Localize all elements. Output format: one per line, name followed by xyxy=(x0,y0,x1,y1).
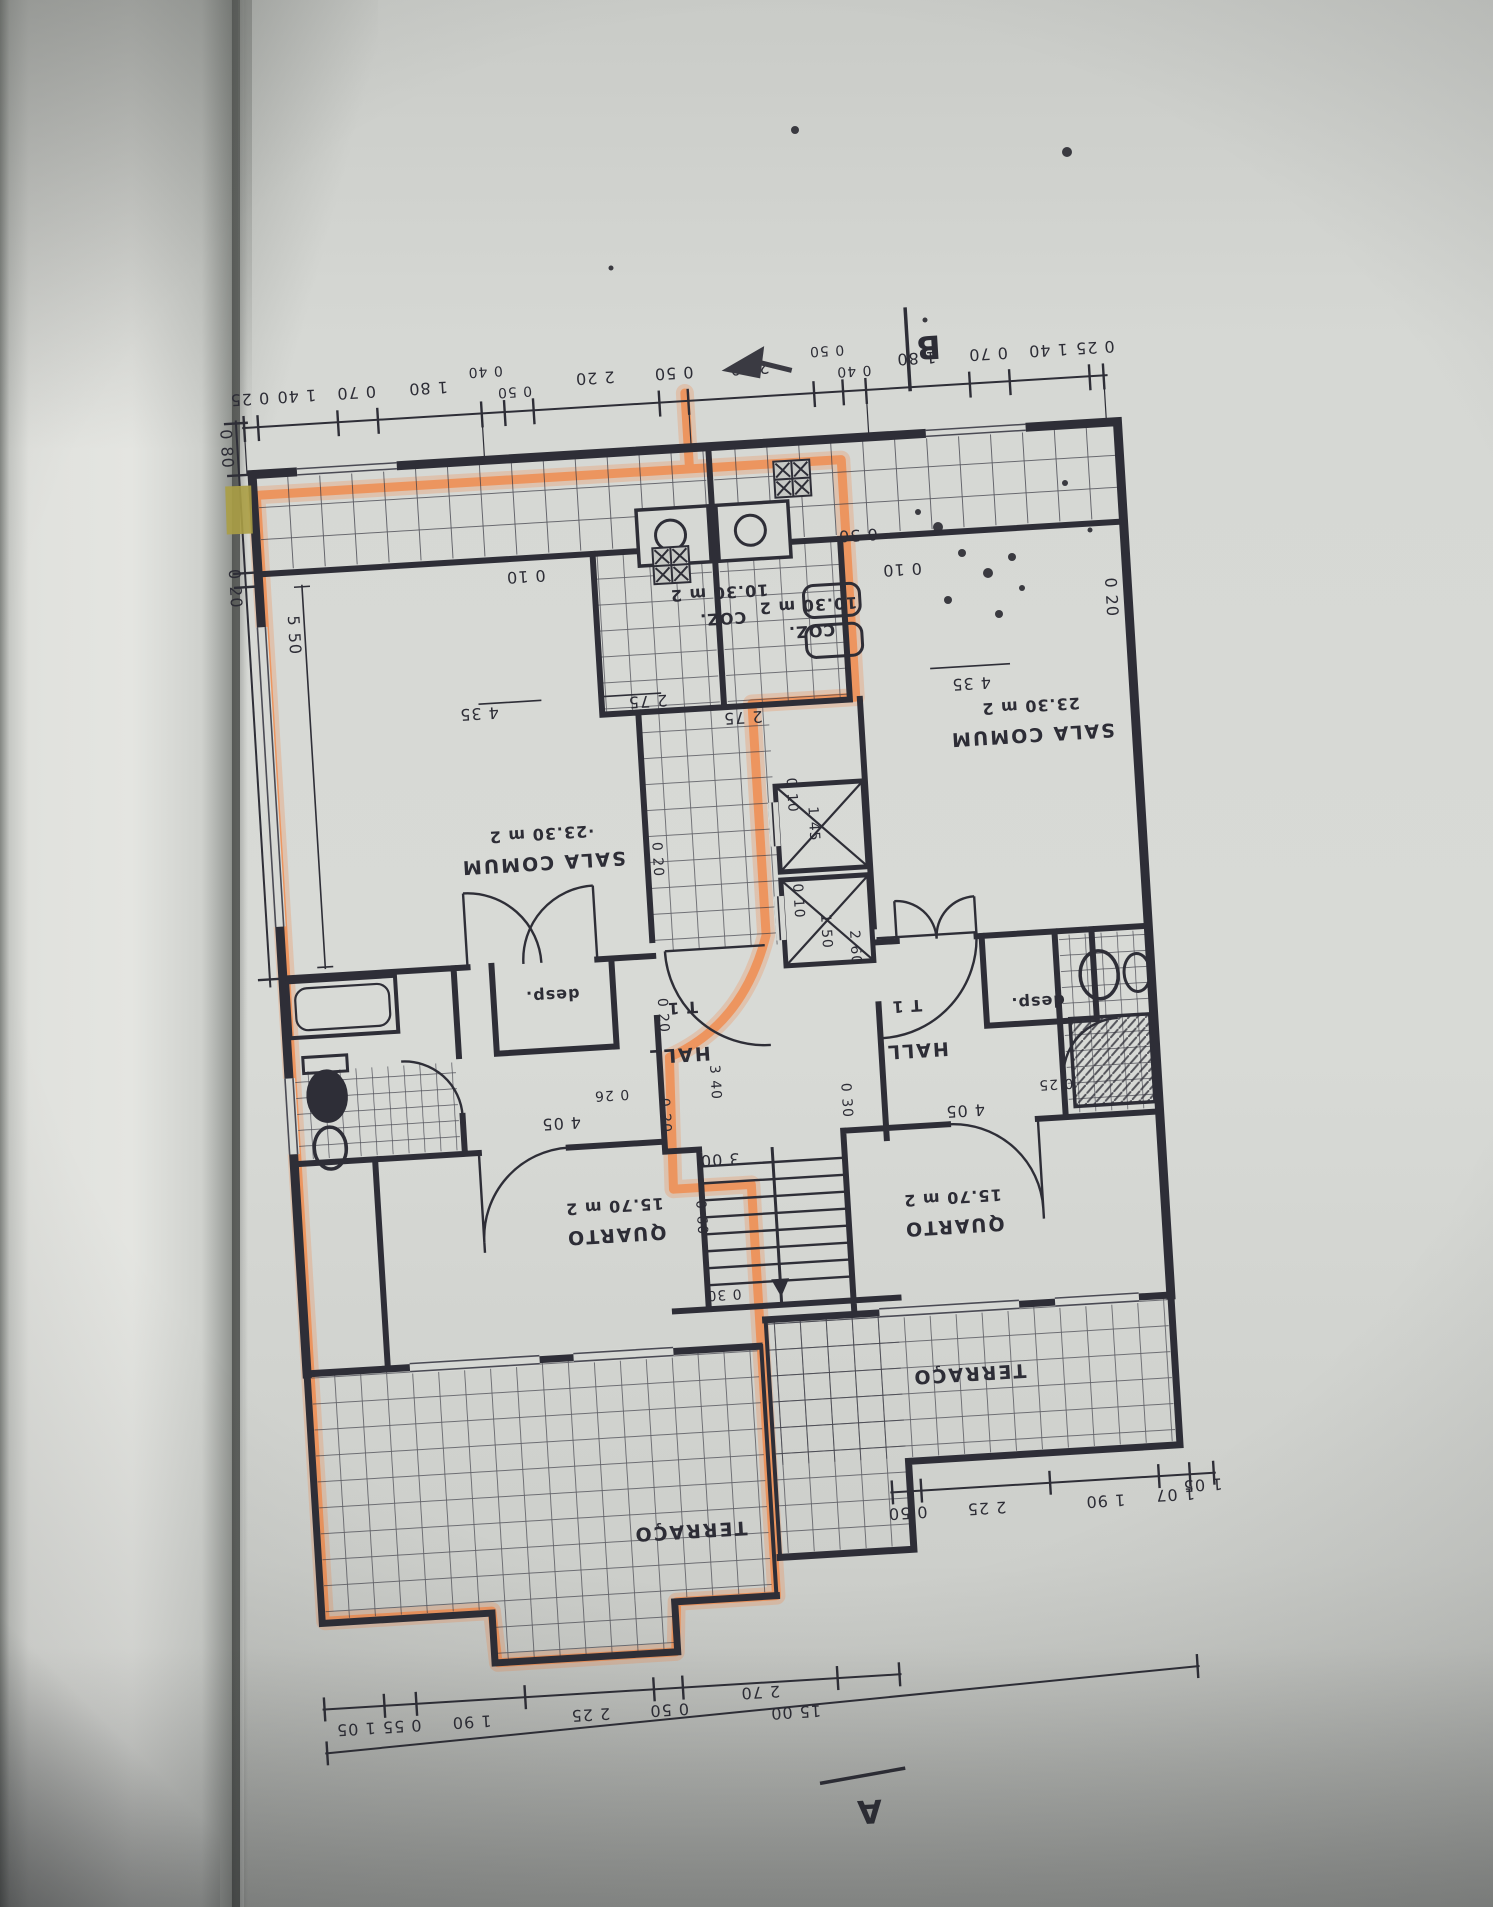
dim-top-2: 1 40 xyxy=(276,386,317,407)
dim-wall-020c: 0 20 xyxy=(656,1098,674,1134)
dim-top-15: 0 25 xyxy=(1075,337,1116,358)
dim-stair-060: 0 60 xyxy=(692,1200,710,1236)
dim-lift-145: 1 45 xyxy=(804,806,822,842)
dim-bottom-4: 2 25 xyxy=(570,1704,611,1725)
dim-sala-width-left: 4 35 xyxy=(459,703,500,724)
toilet-left xyxy=(307,1070,348,1122)
photographed-floor-plan-page: 0 25 1 40 0 70 1 80 0 40 0 50 2 20 0 50 … xyxy=(0,0,1493,1907)
label-quarto-right: QUARTO xyxy=(903,1212,1005,1240)
entry-door-right xyxy=(877,932,983,1038)
dim-top-10: 0 50 xyxy=(808,341,844,359)
label-hall-left: HALL xyxy=(647,1042,711,1068)
dim-bottom-9: 1 90 xyxy=(1085,1490,1126,1511)
dim-top-3: 0 70 xyxy=(336,382,377,403)
label-coz-left: COZ. xyxy=(699,608,747,630)
dim-quarto-off-left: 0 26 xyxy=(594,1086,630,1104)
dim-top-5: 0 40 xyxy=(467,362,503,380)
sala-double-door-right xyxy=(894,896,976,941)
dim-lift-010b: 0 10 xyxy=(789,883,807,919)
stove-left xyxy=(652,546,690,584)
label-quarto-left: QUARTO xyxy=(565,1221,667,1249)
dim-bottom-11: 1 05 xyxy=(1182,1474,1223,1495)
dim-bottom-3: 1 90 xyxy=(451,1711,492,1732)
dim-wall-020a: 0 20 xyxy=(648,842,666,878)
quarto-door-left xyxy=(479,1148,575,1253)
dim-sala-width-right: 4 35 xyxy=(951,673,992,694)
dim-top-8: 0 50 xyxy=(653,362,694,383)
label-hall-right: HALL xyxy=(885,1037,949,1063)
dim-bottom-total: 15 00 xyxy=(770,1701,822,1723)
label-type-right: T 1 xyxy=(891,996,923,1017)
dim-sala-depth-left: 0 10 xyxy=(505,566,546,587)
label-sala-area-left: ·23.30 m 2 xyxy=(488,821,595,846)
dim-top-11: 0 40 xyxy=(836,362,872,380)
label-desp-right: desp. xyxy=(1010,991,1065,1013)
dim-lift-150: 1 50 xyxy=(817,913,835,949)
floor-plan-drawing: 0 25 1 40 0 70 1 80 0 40 0 50 2 20 0 50 … xyxy=(0,0,1493,1907)
dim-lift-010a: 0 10 xyxy=(783,777,801,813)
dim-coz-width-right: 2 75 xyxy=(722,707,763,728)
stair-direction-arrow xyxy=(771,1278,790,1297)
landing-tiles xyxy=(640,707,782,952)
dim-bottom-6: 2 70 xyxy=(740,1682,781,1703)
sticky-tab xyxy=(225,486,253,535)
label-desp-left: desp. xyxy=(525,985,580,1007)
sala-double-door-left xyxy=(463,886,597,968)
dim-left-3: 5 50 xyxy=(284,615,305,656)
dim-coz-width-left: 2 75 xyxy=(627,691,668,712)
dim-top-1: 0 25 xyxy=(229,388,270,409)
dim-stair-300: 3 00 xyxy=(699,1149,740,1170)
bathtub-right xyxy=(1070,1014,1155,1107)
dim-quarto-width-right: 4 05 xyxy=(945,1100,986,1121)
label-coz-right: COZ. xyxy=(788,620,836,642)
dim-sala-depth-right: 0 10 xyxy=(882,559,923,580)
dim-top-6: 0 50 xyxy=(496,382,532,400)
dim-bottom-8: 2 25 xyxy=(966,1497,1007,1518)
dim-stair-340: 3 40 xyxy=(706,1064,724,1100)
terrace-tiles-left xyxy=(311,1348,772,1619)
dim-top-4: 1 80 xyxy=(408,377,449,398)
dim-left-1: 0 80 xyxy=(216,429,237,470)
dim-top-13: 0 70 xyxy=(968,343,1009,364)
dim-top-14: 1 40 xyxy=(1028,340,1069,361)
label-sala-area-right: 23.30 m 2 xyxy=(981,693,1081,718)
dim-bottom-1: 1 05 xyxy=(335,1718,376,1739)
dim-right-030: 0 30 xyxy=(838,525,879,546)
dim-top-7: 2 20 xyxy=(574,367,615,388)
dim-left-2: 0 20 xyxy=(225,568,246,609)
stove-right xyxy=(773,460,811,498)
label-quarto-area-left: 15.70 m 2 xyxy=(565,1194,665,1219)
label-sala-right: SALA COMUM xyxy=(949,718,1115,750)
dim-right-020: 0 20 xyxy=(1101,577,1122,618)
dim-wall-030b: 0 30 xyxy=(706,1285,742,1303)
label-sala-left: SALA COMUM xyxy=(460,847,626,879)
dim-quarto-off-right: 0 25 xyxy=(1038,1075,1074,1093)
section-letter-b: B xyxy=(915,327,942,366)
section-line-a xyxy=(819,1768,905,1783)
dim-bottom-2: 0 55 xyxy=(381,1716,422,1737)
label-quarto-area-right: 15.70 m 2 xyxy=(903,1185,1003,1210)
section-letter-a: A xyxy=(856,1792,883,1831)
dim-wall-030c: 0 30 xyxy=(837,1082,855,1118)
dim-bottom-7: 0 50 xyxy=(887,1502,928,1523)
quarto-door-right xyxy=(948,1119,1044,1224)
dim-hall-260: 2 60 xyxy=(846,930,864,966)
dim-quarto-width-left: 4 05 xyxy=(541,1113,582,1134)
dim-bottom-5: 0 50 xyxy=(649,1699,690,1720)
label-type-left: T 1 xyxy=(667,997,699,1018)
